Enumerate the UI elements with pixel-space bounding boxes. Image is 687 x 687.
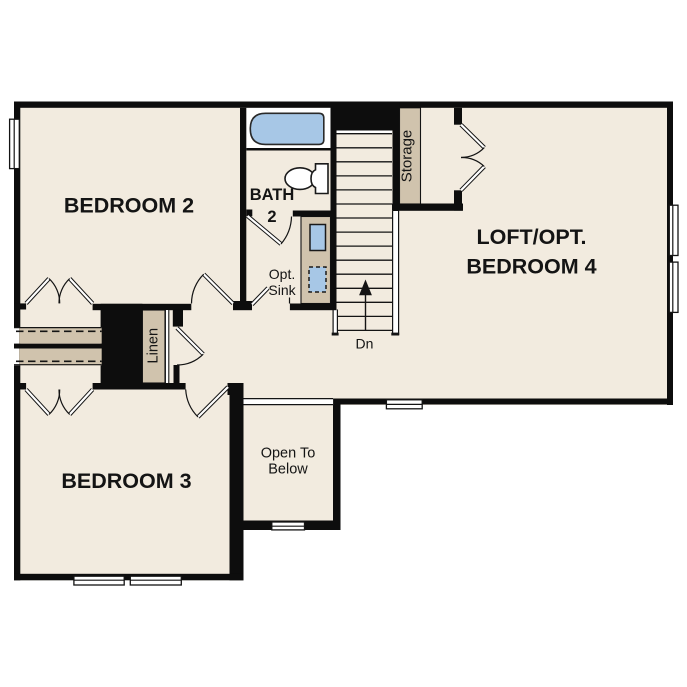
svg-text:Open To: Open To	[261, 446, 316, 462]
svg-text:Opt.: Opt.	[269, 266, 295, 282]
svg-text:Dn: Dn	[356, 336, 374, 352]
svg-text:BEDROOM 2: BEDROOM 2	[64, 194, 194, 218]
svg-text:2: 2	[267, 208, 276, 226]
svg-text:BEDROOM 3: BEDROOM 3	[61, 469, 191, 493]
svg-text:Below: Below	[268, 461, 308, 477]
svg-text:LOFT/OPT.: LOFT/OPT.	[477, 225, 587, 249]
svg-text:BATH: BATH	[250, 186, 295, 204]
svg-text:Sink: Sink	[268, 282, 296, 298]
svg-text:BEDROOM 4: BEDROOM 4	[466, 254, 596, 278]
svg-text:Storage: Storage	[399, 130, 416, 183]
svg-text:Linen: Linen	[146, 328, 162, 363]
